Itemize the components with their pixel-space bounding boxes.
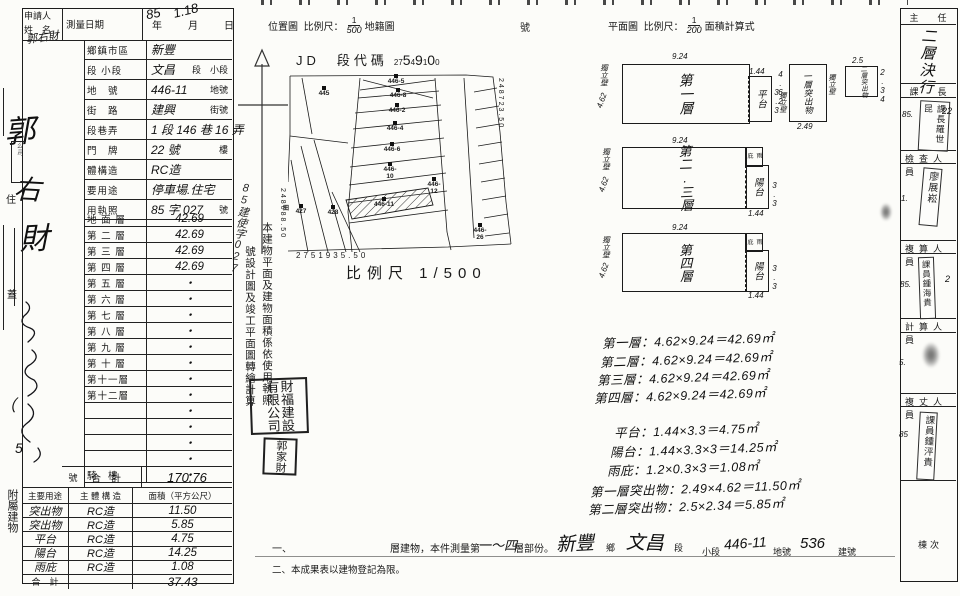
form-row-label: 體構造 [84, 160, 147, 179]
parcel-number: 446-10 [383, 166, 396, 180]
date-units: 年 月 日 [152, 17, 236, 32]
floor-row-label: 第 三 層 [84, 243, 147, 258]
strip-line [900, 24, 956, 25]
form-row-value: 新豐 [151, 41, 175, 58]
floor-row-label: 第 八 層 [84, 323, 147, 338]
floor-row: ・ [84, 419, 232, 435]
floor-row-value: ・ [147, 451, 232, 467]
summary-use: 雨庇 [22, 561, 69, 574]
dim-balcony2-right: 3.3 [770, 181, 779, 208]
floor-row: 第 十 層 ・ [84, 355, 232, 371]
note1-township-label: 鄉 [606, 541, 615, 554]
summary-table: 主要用途 主 體 構 造 面積（平方公尺） 突出物 RC造 11.50 突出物 … [22, 487, 232, 589]
location-scale-label: 比例尺： [304, 18, 344, 33]
form-row-label: 段 小段 [84, 60, 147, 79]
form-row-value: 停車場.住宅 [151, 181, 214, 198]
form-row-label: 地 號 [84, 80, 147, 99]
checker-date-left: 85. [900, 280, 911, 289]
summary-total-row: 合 計 37.43 [22, 575, 232, 589]
summary-header-row: 主要用途 主 體 構 造 面積（平方公尺） [22, 488, 232, 504]
parcel-number: 446-2 [389, 107, 406, 114]
form-row-value-cell: 1 段 146 巷 16 弄 [147, 121, 232, 138]
summary-header-structure: 主 體 構 造 [69, 488, 133, 503]
floor-row: 第 九 層 ・ [84, 339, 232, 355]
note1-text-a: 層建物，本件測量第 [390, 540, 480, 555]
plan-floor4-label: 第四層 [674, 243, 694, 283]
parcel-label: 446-4 [385, 121, 405, 133]
section-code-digit: 0 [435, 58, 439, 67]
form-row-label: 要用途 [84, 180, 147, 199]
floor-row-value: ・ [147, 387, 232, 403]
parcel-number: 427 [296, 208, 307, 215]
floor-row: 第 六 層 ・ [84, 291, 232, 307]
plan-balcony-row3: 陽台 [745, 250, 769, 292]
summary-structure: RC造 [69, 561, 133, 574]
summary-structure: RC造 [69, 504, 133, 517]
floor-row-value: ・ [147, 291, 232, 307]
location-title: 位置圖 [268, 18, 298, 33]
floor-row: 地 面 層 42.69 [84, 211, 232, 227]
form-row: 街 路 建興 街號 [84, 100, 232, 120]
plan-projection1: 一層突出物 [789, 64, 827, 122]
floor-row-value: 42.69 [147, 229, 232, 241]
plan-eave-row2: 雨庇 [745, 147, 763, 167]
note1-parcel-handwritten: 446-11 [723, 534, 767, 553]
parcel-label: 446-26 [470, 223, 490, 242]
wall-label-row2: 獨立壁 [602, 148, 610, 171]
parcel-label: 446-12 [424, 177, 444, 196]
plan-floor1-label: 第一層 [675, 73, 696, 116]
wall-label-proj1-left: 獨立壁 [779, 92, 786, 113]
plan-header: 平面圖 比例尺： 1 200 面積計算式 [608, 16, 755, 35]
section-code-digit: 0 [427, 52, 435, 68]
note1-section-label: 段 [674, 541, 683, 554]
note1-section-handwritten: 文昌 [626, 527, 665, 555]
parcel-number: 446-8 [390, 92, 407, 99]
form-row: 地 號 446-11 地號 [84, 80, 232, 100]
calculator-faint-stamp [922, 342, 940, 368]
floor-row-label: 第 四 層 [84, 259, 147, 274]
dim-balcony2-bottom: 1.44 [748, 209, 764, 218]
floor-row-label [84, 451, 147, 466]
parcel-number: 428 [328, 209, 339, 216]
section-code-digit: 5 [403, 52, 411, 68]
form-row-label: 段巷弄 [84, 120, 147, 139]
summary-use: 突出物 [22, 518, 69, 531]
note1-township-handwritten: 新豐 [555, 528, 594, 557]
floor-row-label [84, 419, 147, 434]
parcel-label: 428 [323, 205, 343, 217]
plan-scale-label: 比例尺： [644, 18, 684, 33]
floor-row-value: ・ [147, 419, 232, 435]
floor-row-value: ・ [147, 323, 232, 339]
note1-text-b: 層部份。 [514, 540, 554, 555]
parcel-number: 446-12 [427, 181, 440, 195]
checker-stamp: 課員鍾海貴 [918, 257, 936, 320]
plan-balcony-row2: 陽台 [745, 165, 769, 209]
plan-platform-label: 平台 [753, 89, 768, 108]
plan-floor1: 第一層 [622, 64, 750, 124]
address-label: 住 [6, 191, 16, 206]
form-row: 門 牌 22 號 樓 [84, 140, 232, 160]
form-row-value: RC造 [151, 161, 180, 178]
form-row-suffix: 樓 [219, 143, 228, 156]
parcel-number: 446-4 [387, 125, 404, 132]
approval-title-director: 主 任 [900, 11, 956, 24]
floor-row-label: 第 九 層 [84, 339, 147, 354]
dim-proj2-top: 2.5 [852, 56, 863, 65]
checker-date-right: 2 [945, 274, 950, 284]
dim-row1-left: 4.62 [595, 92, 609, 110]
floor-row-label: 第十一層 [84, 371, 147, 386]
plan-title: 平面圖 [608, 18, 638, 33]
floor-row: ・ [84, 451, 232, 467]
floor-row: ・ [84, 435, 232, 451]
summary-header-use: 主要用途 [22, 488, 69, 503]
form-row-value-cell: RC造 [147, 161, 232, 178]
floor-row: 第十二層 ・ [84, 387, 232, 403]
floor-row-label: 第 十 層 [84, 355, 147, 370]
cropped-title-fragments [248, 0, 908, 5]
wall-label-row1: 獨立壁 [600, 64, 608, 87]
location-maptype-label: 地籍圖 [365, 18, 395, 33]
form-row-suffix: 地號 [210, 83, 228, 96]
resurveyor-date: 85 [899, 430, 908, 439]
summary-row: 雨庇 RC造 1.08 [22, 561, 232, 575]
dim-row1-top: 9.24 [672, 52, 688, 61]
form-row: 體構造 RC造 [84, 160, 232, 180]
form-row-value: 22 號 [151, 141, 180, 158]
note2-text: 二、本成果表以建物登記為限。 [272, 562, 405, 576]
date-year-handwritten: 85 [145, 5, 162, 22]
form-row-value: 建興 [151, 101, 175, 118]
floor-row-value: 42.69 [147, 245, 232, 257]
parcel-label: 446-10 [380, 162, 400, 181]
floor-row-label: 地 面 層 [84, 211, 147, 226]
floor-row-value: ・ [147, 435, 232, 451]
dim-row3-top: 9.24 [672, 223, 688, 232]
form-row-label: 門 牌 [84, 140, 147, 159]
form-row-suffix: 街號 [210, 103, 228, 116]
resurveyor-stamp: 課員鍾泙貴 [916, 412, 938, 481]
chief-date-right: 22 [942, 106, 952, 116]
floor-row: 第 七 層 ・ [84, 307, 232, 323]
total-value: 170.76 [142, 470, 232, 485]
form-row-value: 文昌 [151, 61, 175, 78]
location-scale-fraction: 1 500 [347, 16, 362, 35]
form-row: 段 小段 文昌 段 小段 [84, 60, 232, 80]
floor-row-value: ・ [147, 403, 232, 419]
approval-title-chief: 課 長 [900, 85, 956, 98]
form-row-label: 街 路 [84, 100, 147, 119]
floor-row-value: 42.69 [147, 261, 232, 273]
floor-row: 第十一層 ・ [84, 371, 232, 387]
form-row: 鄉鎮市區 新豐 [84, 40, 232, 60]
summary-total-value: 37.43 [133, 575, 232, 589]
plan-floor23: 第二.三層 [622, 147, 747, 209]
inspector-date: 1. [901, 194, 908, 203]
form-row: 要用途 停車場.住宅 [84, 180, 232, 200]
floor-row: 第 五 層 ・ [84, 275, 232, 291]
form-row-value-cell: 文昌 段 小段 [147, 61, 232, 78]
area-calc-label: 面積計算式 [705, 18, 755, 33]
total-prefix: 號 [62, 471, 84, 484]
floor-row-value: ・ [147, 339, 232, 355]
parcel-label: 446-8 [388, 88, 408, 100]
floor-row-label: 第 二 層 [84, 227, 147, 242]
floor-row: 第 四 層 42.69 [84, 259, 232, 275]
section-code-digit: 27 [394, 58, 403, 67]
plan-eave-row3-label: 雨庇 [745, 238, 763, 247]
calculator-date: 5. [899, 358, 906, 367]
applicant-label: 申請人 [24, 10, 60, 24]
plan-eave-row2-label: 雨庇 [745, 152, 763, 162]
floor-row-label: 第 六 層 [84, 291, 147, 306]
attached-building-side-label: 附屬建物 [4, 489, 20, 581]
personal-seal: 郭家財 [262, 437, 297, 475]
parcel-label: 田 427 [291, 204, 311, 216]
floor-row-value: ・ [147, 355, 232, 371]
note1-floors-handwritten: 一～四 [478, 535, 517, 554]
map-coordinate-right: 248723.50 [497, 78, 504, 129]
wall-label-row3: 獨立壁 [602, 236, 610, 259]
dim-balcony3-right: 3.3 [770, 264, 779, 291]
plan-balcony-row2-label: 陽台 [750, 177, 765, 196]
wall-label-proj1-right: 獨立壁 [828, 74, 835, 95]
parcel-label: 445 [314, 86, 334, 98]
map-scale-caption: 比例尺 1/500 [346, 262, 487, 283]
section-code-title: JD 段代碼 27549100 [296, 50, 440, 69]
form-row: 段巷弄 1 段 146 巷 16 弄 [84, 120, 232, 140]
parcel-number: 445 [319, 90, 330, 97]
form-row-value-cell: 新豐 [147, 41, 232, 58]
unit-sequence-label: 棟次 [918, 538, 942, 551]
footnote-underline [255, 556, 895, 557]
summary-structure: RC造 [69, 547, 133, 560]
parcel-label: 446-6 [382, 142, 402, 154]
parcel-number: 446-5 [388, 78, 405, 85]
form-row-value: 446-11 [151, 83, 187, 97]
strip-line [900, 240, 956, 241]
plan-projection2-label: 二層突出物 [858, 65, 866, 98]
applicant-header: 申請人 姓 名 [24, 10, 60, 37]
form-row-value-cell: 446-11 地號 [147, 83, 232, 97]
plan-floor4: 第四層 [622, 233, 747, 292]
building-survey-result-form: 郭右財 郭 右 財 公司 住 蓋 （ 5 附屬建物 申請人 姓 名 測量日期 年… [0, 0, 960, 596]
floor-area-rows: 地 面 層 42.69 第 二 層 42.69 第 三 層 42.69 第 四 … [84, 211, 232, 483]
floor-row-label: 第 五 層 [84, 275, 147, 290]
floor-total-row: 號 合 計 170.76 [62, 466, 232, 488]
dim-proj1-bottom: 2.49 [797, 122, 813, 131]
summary-area: 14.25 [133, 547, 232, 559]
floor-row-label: 第 七 層 [84, 307, 147, 322]
margin-line [3, 225, 4, 330]
form-line [62, 8, 63, 40]
section-code-prefix: JD 段代碼 [296, 50, 388, 69]
parcel-number: 446-11 [374, 201, 394, 208]
parcel-label: 446-5 [386, 74, 406, 86]
summary-use: 突出物 [22, 504, 69, 517]
summary-total-spacer [69, 575, 133, 589]
summary-use: 平台 [22, 532, 69, 545]
dim-balcony3-bottom: 1.44 [748, 291, 764, 300]
note1-prefix: 一、 [272, 540, 292, 555]
form-row-suffix: 段 小段 [192, 63, 228, 76]
survey-date-label: 測量日期 [64, 10, 144, 38]
map-coordinate-left: 248688.50 [279, 188, 286, 239]
summary-area: 4.75 [133, 533, 232, 545]
form-row-value-cell: 22 號 樓 [147, 141, 232, 158]
floor-row: 第 二 層 42.69 [84, 227, 232, 243]
company-seal: 財福建設有限公司 [249, 377, 309, 435]
margin-paren: （ [0, 392, 16, 416]
summary-structure: RC造 [69, 532, 133, 545]
dim-proj2-right: 2.34 [878, 68, 887, 104]
chief-date-left: 85. [902, 110, 913, 119]
map-coordinate-bottom: 2751935.50 [296, 251, 368, 260]
parcel-label: 446-2 [387, 103, 407, 115]
form-basic-rows: 鄉鎮市區 新豐 段 小段 文昌 段 小段 地 號 446-11 地號 街 路 建… [84, 40, 232, 220]
location-header: 位置圖 比例尺： 1 500 地籍圖 [268, 16, 395, 35]
floor-row-label [84, 435, 147, 450]
plan-scale-fraction: 1 200 [687, 16, 702, 35]
parcel-label: 446-11 [374, 197, 394, 209]
scale-denominator: 500 [347, 26, 362, 35]
floor-row-value: ・ [147, 275, 232, 291]
summary-area: 1.08 [133, 561, 232, 573]
plan-balcony-row3-label: 陽台 [750, 261, 765, 280]
summary-body: 突出物 RC造 11.50 突出物 RC造 5.85 平台 RC造 4.75 陽… [22, 504, 232, 575]
floor-row: 第 三 層 42.69 [84, 243, 232, 259]
summary-total-label: 合 計 [22, 575, 69, 589]
strip-line [900, 393, 956, 394]
form-row-value-cell: 建興 街號 [147, 101, 232, 118]
plan-scale-denominator: 200 [687, 26, 702, 35]
summary-area: 5.85 [133, 519, 232, 531]
floor-row-value: ・ [147, 307, 232, 323]
parcel-number: 446-6 [384, 146, 401, 153]
form-row-value-cell: 停車場.住宅 [147, 181, 232, 198]
section-code-digits: 27549100 [394, 52, 440, 68]
floor-row: ・ [84, 403, 232, 419]
summary-area: 11.50 [133, 505, 232, 517]
form-row-label: 鄉鎮市區 [84, 40, 147, 59]
floor-row-value: ・ [147, 371, 232, 387]
plan-projection1-label: 一層突出物 [801, 72, 814, 115]
dim-row3-left: 4.62 [597, 262, 611, 280]
parcel-number: 446-26 [473, 227, 486, 241]
summary-use: 陽台 [22, 547, 69, 560]
floor-row-label: 第十二層 [84, 387, 147, 402]
note1-buildingno-handwritten: 536 [800, 535, 825, 552]
name-label: 姓 名 [24, 24, 60, 38]
plan-platform: 平台 [748, 76, 772, 122]
ink-smudge [880, 203, 892, 221]
location-number-suffix: 號 [520, 19, 530, 34]
dim-platform-top: 1.44 [749, 67, 765, 76]
plan-floor23-label: 第二.三層 [674, 144, 695, 212]
plan-projection2: 二層突出物 [845, 66, 878, 97]
floor-row-value: 42.69 [147, 213, 232, 225]
summary-structure: RC造 [69, 518, 133, 531]
dim-row2-left: 4.62 [597, 176, 611, 194]
total-label: 合 計 [84, 467, 142, 488]
form-row-value: 1 段 146 巷 16 弄 [151, 121, 244, 138]
floor-row: 第 八 層 ・ [84, 323, 232, 339]
section-code-digit: 9 [415, 52, 423, 68]
summary-header-area: 面積（平方公尺） [133, 490, 232, 502]
floor-row-label [84, 403, 147, 418]
